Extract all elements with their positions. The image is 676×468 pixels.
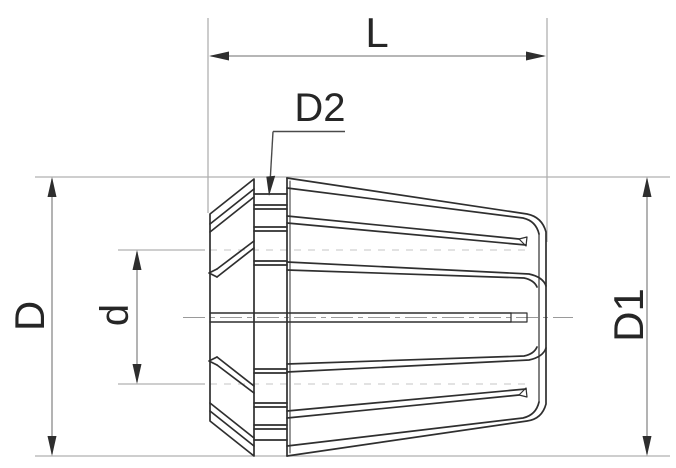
neck-diameter-leader xyxy=(270,132,346,193)
front-diameter-label: D1 xyxy=(605,288,652,342)
slot-line xyxy=(287,216,519,239)
extension-lines xyxy=(35,18,670,456)
slot-line xyxy=(287,223,526,245)
dimension-labels: L D2 D d D1 xyxy=(6,9,652,342)
neck-leader-arrowhead xyxy=(266,176,275,196)
collet-dimension-drawing: L D2 D d D1 xyxy=(0,0,676,468)
back-taper-facet-line xyxy=(210,411,254,446)
back-taper-facet-line xyxy=(210,197,254,232)
dimension-lines xyxy=(52,56,647,454)
arrowheads xyxy=(48,52,652,457)
back-taper-slot-line xyxy=(217,241,254,269)
back-taper-slot-line xyxy=(217,365,254,393)
length-label: L xyxy=(365,9,388,56)
bore-top-arrowhead xyxy=(133,250,142,270)
length-right-arrowhead xyxy=(526,52,546,61)
back-taper-facet-line xyxy=(210,403,254,438)
drawing-canvas: L D2 D d D1 xyxy=(0,0,676,468)
slot-line xyxy=(287,395,519,418)
back-diameter-bottom-arrowhead xyxy=(48,436,57,456)
length-left-arrowhead xyxy=(209,52,229,61)
back-taper-slot-line xyxy=(217,357,254,386)
back-taper-slot-line xyxy=(217,248,254,277)
bore-bottom-arrowhead xyxy=(133,364,142,384)
slot-line xyxy=(287,389,526,411)
front-diameter-bottom-arrowhead xyxy=(643,436,652,456)
back-diameter-top-arrowhead xyxy=(48,177,57,197)
bore-diameter-label: d xyxy=(93,304,137,326)
back-taper-facet-line xyxy=(210,189,254,224)
back-diameter-label: D xyxy=(6,301,53,331)
neck-diameter-label: D2 xyxy=(294,86,345,130)
front-diameter-top-arrowhead xyxy=(643,177,652,197)
